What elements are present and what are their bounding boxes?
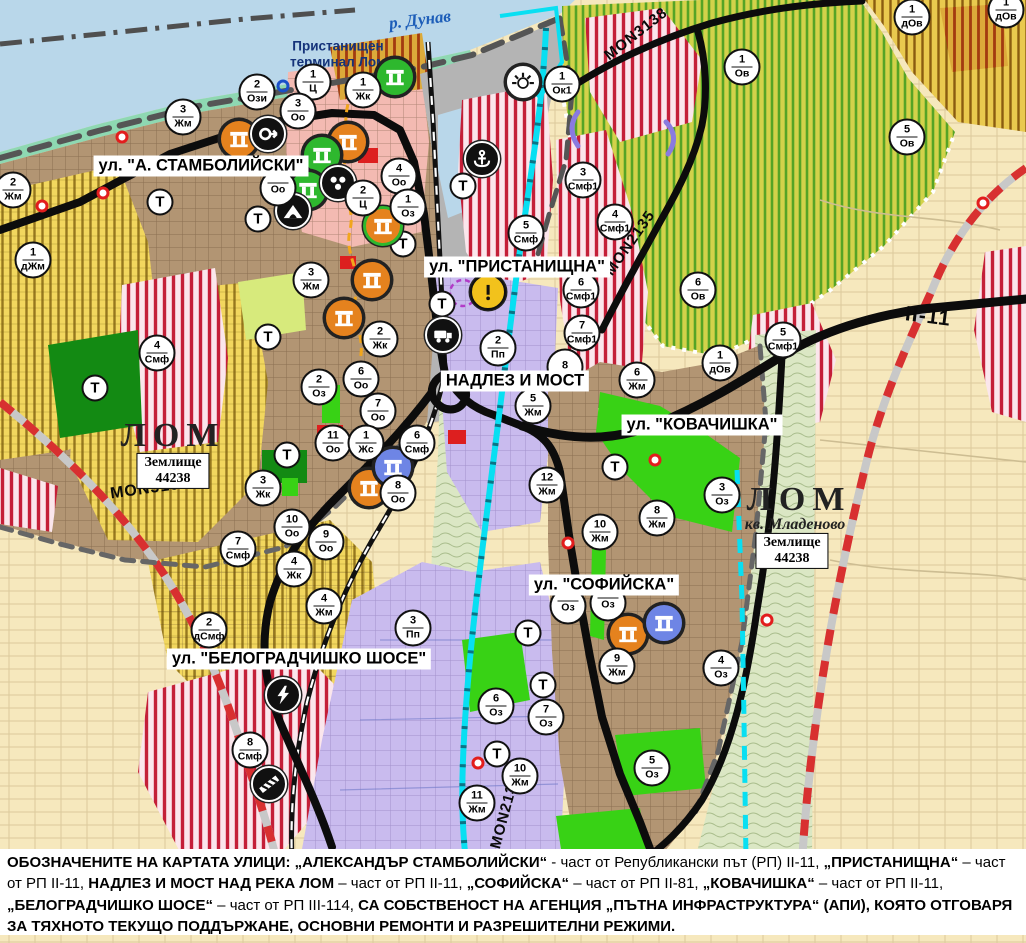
zone-marker: 3Оз — [704, 477, 741, 514]
t-marker: Т — [515, 620, 542, 647]
note-segment: - част от Републикански път (РП) II-11, — [547, 854, 823, 871]
note-segment: – част от РП II-11, — [815, 875, 943, 892]
t-marker: Т — [245, 206, 272, 233]
zone-marker: 3Оо — [280, 93, 317, 130]
zone-marker: 2Ози — [239, 74, 276, 111]
legend-note: ОБОЗНАЧЕНИТЕ НА КАРТАТА УЛИЦИ: „АЛЕКСАНД… — [0, 849, 1026, 935]
zone-marker: 11Жм — [459, 785, 496, 822]
zone-marker: 10Жм — [502, 758, 539, 795]
t-marker: Т — [255, 324, 282, 351]
river-label: р. Дунав — [388, 6, 452, 33]
red-dot-icon — [116, 131, 129, 144]
street-label: НАДЛЕЗ И МОСТ — [441, 371, 589, 392]
note-segment: – част от РП II-11, — [334, 875, 467, 892]
zone-marker: 2Пп — [480, 330, 517, 367]
street-label: ул. "КОВАЧИШКА" — [622, 415, 783, 436]
zone-marker: 8Жм — [639, 500, 676, 537]
note-segment: – част от РП II-81, — [569, 875, 703, 892]
zone-marker: 1Ов — [724, 49, 761, 86]
truck-icon — [425, 317, 461, 353]
monument-icon — [352, 260, 392, 300]
zone-marker: 4Оз — [703, 650, 740, 687]
zone-marker: 2Жм — [0, 172, 32, 209]
sun-icon — [505, 64, 541, 100]
zone-marker: 3Пп — [395, 610, 432, 647]
circle-arrow-icon — [250, 116, 286, 152]
zone-marker: 8Смф — [232, 732, 269, 769]
land-register-box-east: Землище44238 — [755, 533, 828, 569]
zone-marker: 12Жм — [529, 467, 566, 504]
zone-marker: 5Оз — [634, 750, 671, 787]
city-label-lom-east: ЛОМ — [747, 481, 852, 519]
zone-marker: 5Смф — [508, 215, 545, 252]
zone-marker: 11Оо — [315, 425, 352, 462]
anchor-icon — [464, 141, 500, 177]
map[interactable]: р. Дунав Пристанищентерминал Лом ЛОМ ЛОМ… — [0, 0, 1026, 943]
zone-marker: 3Жм — [293, 262, 330, 299]
street-label: ул. "БЕЛОГРАДЧИШКО ШОСЕ" — [167, 649, 431, 670]
zone-marker: 3Жк — [245, 470, 282, 507]
red-dot-icon — [97, 187, 110, 200]
city-label-lom-west: ЛОМ — [121, 417, 226, 455]
zone-marker: 2Ц — [345, 180, 382, 217]
zone-marker: 1дОв — [988, 0, 1025, 29]
zone-marker: 10Оо — [274, 509, 311, 546]
zone-marker: 7Смф1 — [564, 315, 601, 352]
street-label: ул. "ПРИСТАНИЩНА" — [424, 257, 610, 278]
zone-marker: 6Оз — [478, 688, 515, 725]
zone-marker: 10Жм — [582, 514, 619, 551]
zone-marker: 9Жм — [599, 648, 636, 685]
zone-marker: 8Оо — [380, 475, 417, 512]
t-marker: Т — [274, 442, 301, 469]
road-number-label: MON3138 — [601, 4, 671, 64]
zone-marker: 6Смф — [399, 425, 436, 462]
warning-icon — [470, 274, 506, 310]
zone-marker: 1дОв — [894, 0, 931, 36]
t-marker: Т — [147, 189, 174, 216]
street-label: ул. "А. СТАМБОЛИЙСКИ" — [94, 156, 309, 177]
zone-marker: 4Жк — [276, 551, 313, 588]
zone-marker: 5Ов — [889, 119, 926, 156]
zone-marker: 1дЖм — [15, 242, 52, 279]
zone-marker: 4Смф1 — [597, 204, 634, 241]
note-segment: „ПРИСТАНИЩНА“ — [824, 854, 959, 871]
zone-marker: 3Смф1 — [565, 162, 602, 199]
note-segment: ОБОЗНАЧЕНИТЕ НА КАРТАТА УЛИЦИ: „АЛЕКСАНД… — [7, 854, 547, 871]
zone-marker: 2Оз — [301, 369, 338, 406]
red-dot-icon — [36, 200, 49, 213]
street-label: ул. "СОФИЙСКА" — [529, 575, 679, 596]
red-dot-icon — [562, 537, 575, 550]
note-segment: „СОФИЙСКА“ — [467, 875, 569, 892]
note-segment: НАДЛЕЗ И МОСТ НАД РЕКА ЛОМ — [88, 875, 334, 892]
zone-marker: 3Жм — [165, 99, 202, 136]
district-label-mladenovo: кв. Младеново — [745, 516, 846, 534]
zone-marker: 4Жм — [306, 588, 343, 625]
road-number-label: II-11 — [904, 302, 952, 331]
t-marker: Т — [530, 672, 557, 699]
zone-marker: 1дОв — [702, 345, 739, 382]
zone-marker: 2дСмф — [191, 612, 228, 649]
note-segment: „КОВАЧИШКА“ — [703, 875, 815, 892]
zone-marker: 7Оз — [528, 699, 565, 736]
zone-marker: 5Смф1 — [765, 322, 802, 359]
monument-icon — [324, 298, 364, 338]
red-dot-icon — [472, 757, 485, 770]
note-segment: „БЕЛОГРАДЧИШКО ШОСЕ“ — [7, 897, 213, 914]
blue-ring-icon — [277, 80, 290, 93]
zone-marker: 1Ок1 — [544, 66, 581, 103]
zone-marker: 7Смф — [220, 531, 257, 568]
zone-marker: 5Жм — [515, 388, 552, 425]
note-segment: – част от РП III-114, — [213, 897, 358, 914]
t-marker: Т — [82, 375, 109, 402]
t-marker: Т — [602, 454, 629, 481]
lightning-icon — [265, 677, 301, 713]
zone-marker: 6Ов — [680, 272, 717, 309]
zone-marker: 4Смф — [139, 335, 176, 372]
red-dot-icon — [977, 197, 990, 210]
t-marker: Т — [450, 173, 477, 200]
barrier-icon — [251, 766, 287, 802]
zone-marker: 1Оз — [390, 189, 427, 226]
land-register-box-west: Землище44238 — [136, 453, 209, 489]
zone-marker: 1Жс — [348, 425, 385, 462]
map-overlay: р. Дунав Пристанищентерминал Лом ЛОМ ЛОМ… — [0, 0, 1026, 943]
red-dot-icon — [649, 454, 662, 467]
zone-marker: 6Жм — [619, 362, 656, 399]
monument-icon — [644, 603, 684, 643]
red-dot-icon — [761, 614, 774, 627]
zone-marker: 1Жк — [345, 72, 382, 109]
zone-marker: 2Жк — [362, 321, 399, 358]
zone-marker: 9Оо — [308, 524, 345, 561]
t-marker: Т — [429, 291, 456, 318]
